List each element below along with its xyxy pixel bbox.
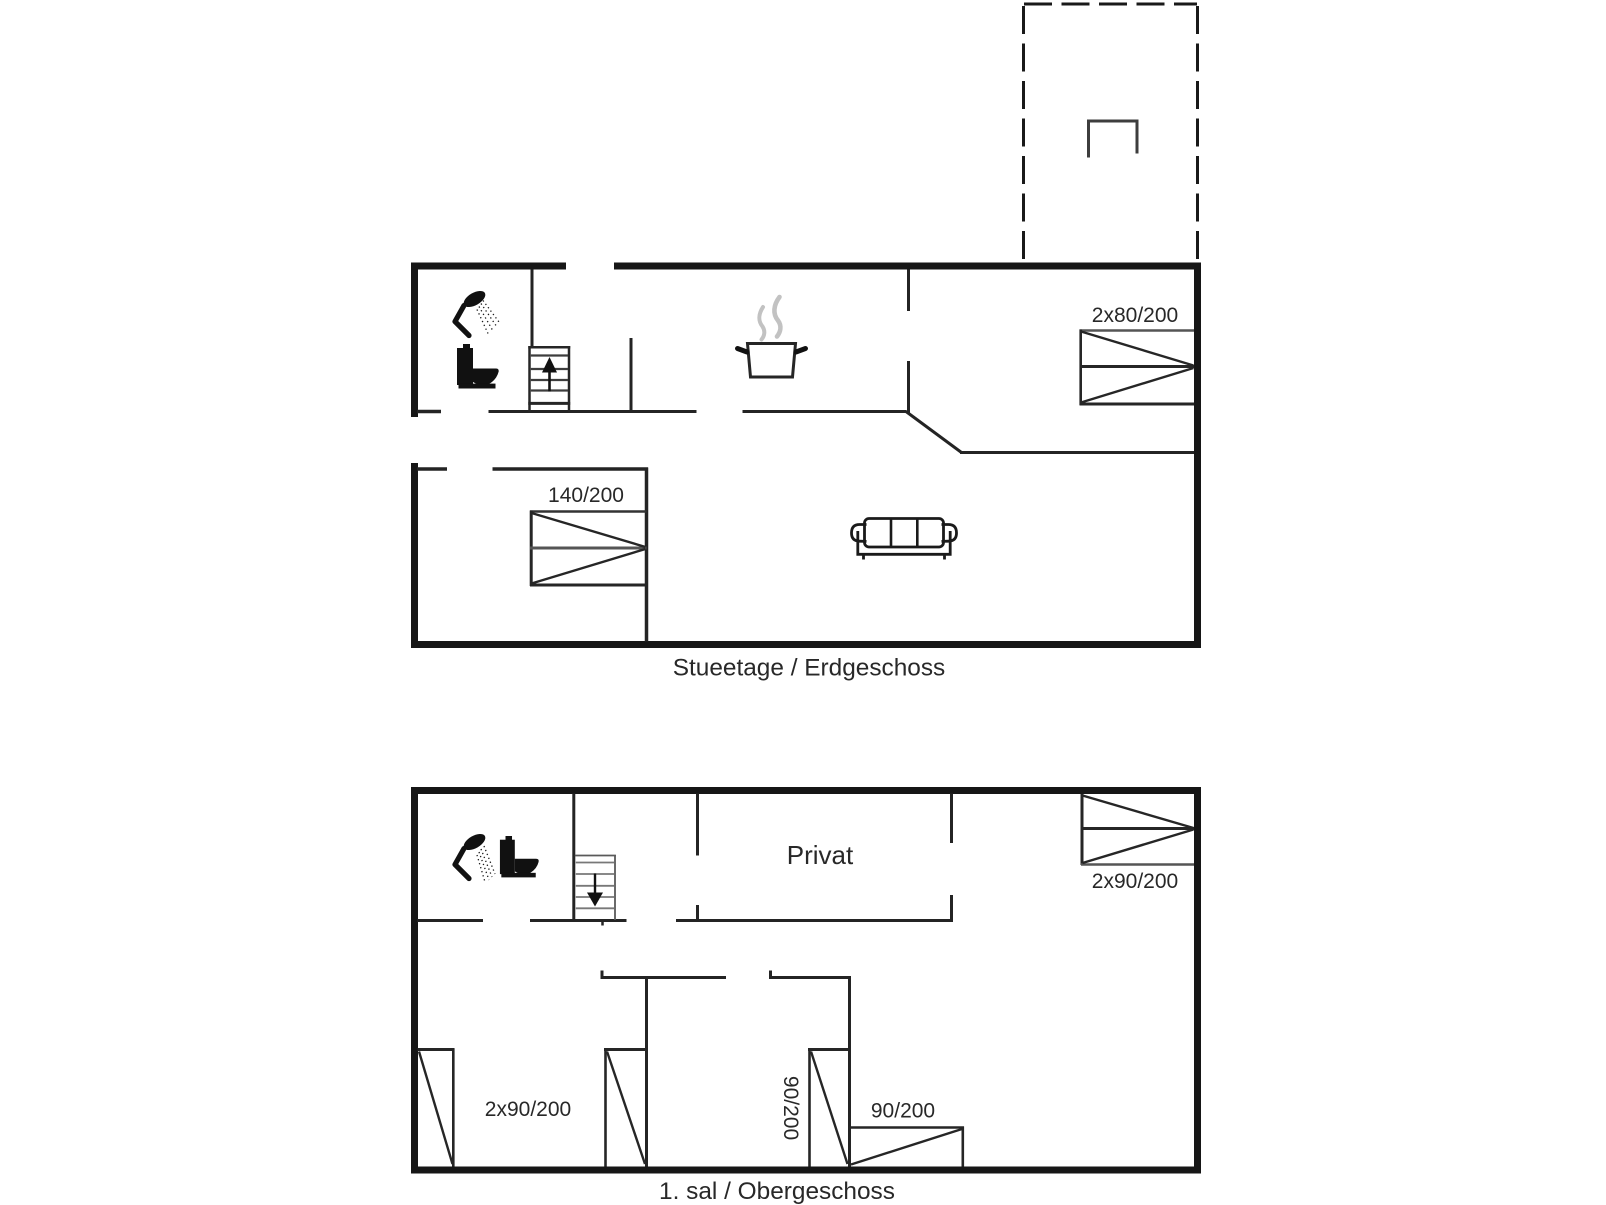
svg-text:2x90/200: 2x90/200 bbox=[1092, 870, 1178, 893]
svg-text:Stueetage / Erdgeschoss: Stueetage / Erdgeschoss bbox=[673, 655, 946, 682]
svg-text:Privat: Privat bbox=[787, 840, 854, 870]
svg-text:90/200: 90/200 bbox=[779, 1076, 802, 1140]
svg-text:90/200: 90/200 bbox=[871, 1100, 935, 1123]
svg-text:140/200: 140/200 bbox=[548, 484, 624, 507]
svg-text:2x90/200: 2x90/200 bbox=[485, 1098, 571, 1121]
svg-text:1. sal / Obergeschoss: 1. sal / Obergeschoss bbox=[659, 1178, 895, 1205]
svg-text:2x80/200: 2x80/200 bbox=[1092, 304, 1178, 327]
